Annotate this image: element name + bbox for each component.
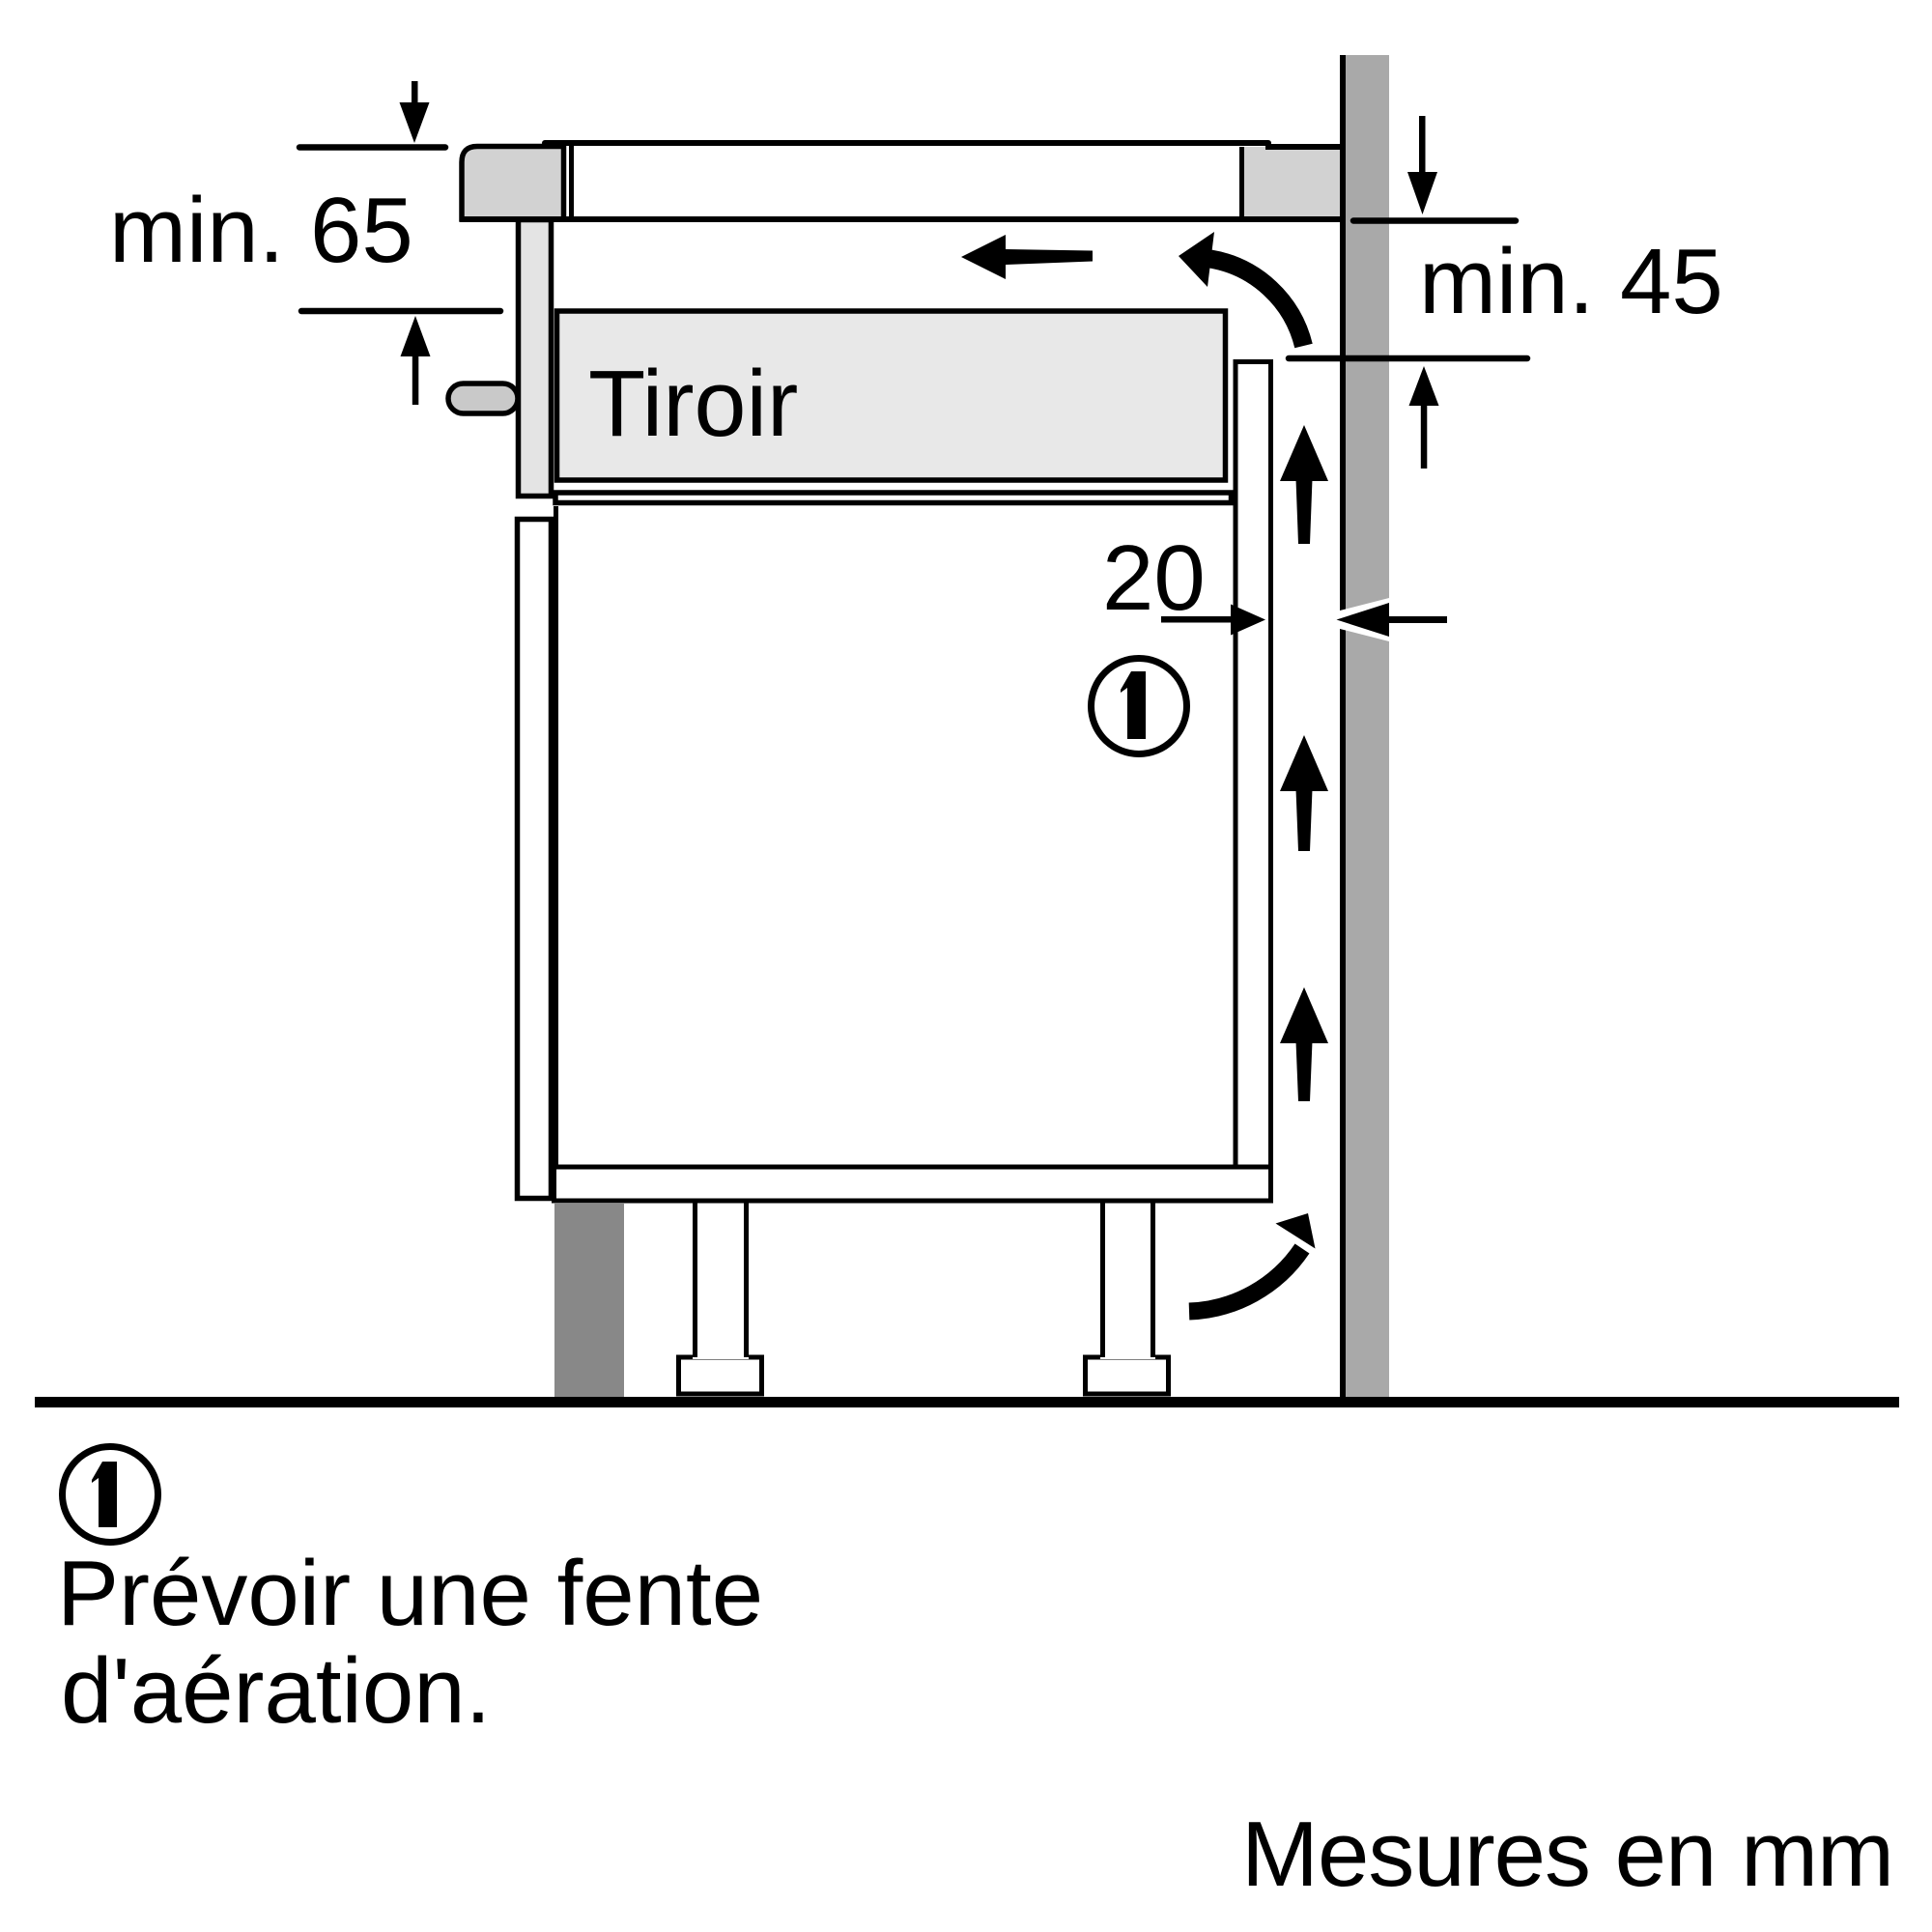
svg-text:Tiroir: Tiroir — [588, 351, 798, 456]
svg-text:Prévoir une fente: Prévoir une fente — [57, 1542, 763, 1645]
svg-text:d'aération.: d'aération. — [61, 1639, 491, 1743]
svg-text:20: 20 — [1102, 526, 1206, 630]
svg-text:min. 65: min. 65 — [109, 179, 413, 282]
svg-text:Mesures en mm: Mesures en mm — [1241, 1803, 1894, 1906]
svg-text:min. 45: min. 45 — [1419, 230, 1723, 333]
